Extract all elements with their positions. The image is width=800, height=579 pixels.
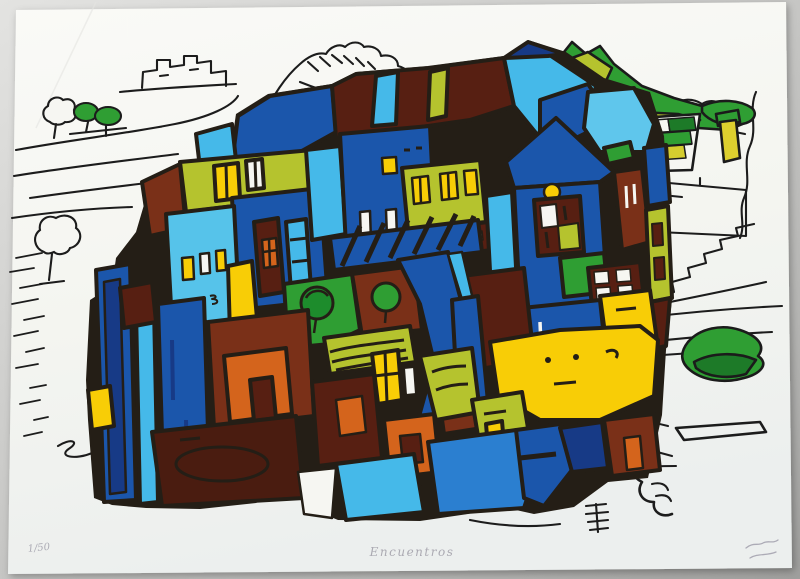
artwork-photo: 1/50 Encuentros: [0, 0, 800, 579]
title-inscription: Encuentros: [369, 545, 455, 559]
photo-backdrop: 1/50 Encuentros: [0, 0, 800, 579]
